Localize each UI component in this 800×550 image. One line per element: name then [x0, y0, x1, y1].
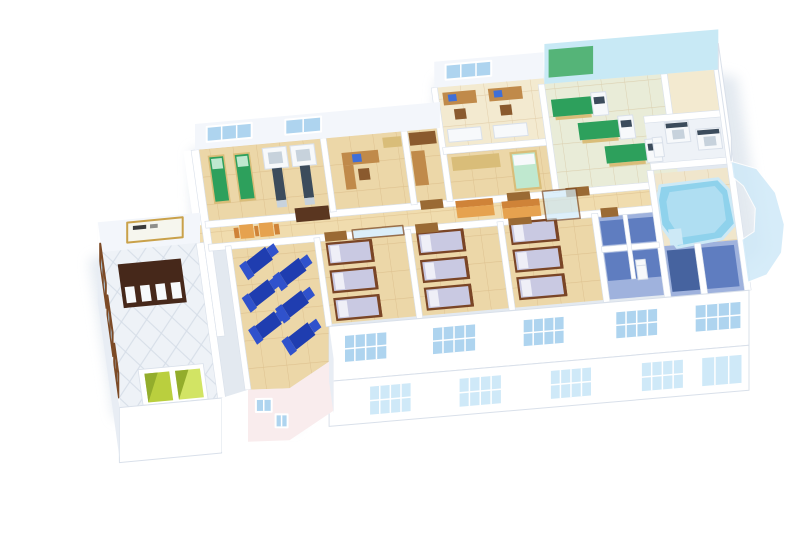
- physio-partition-screen: [549, 46, 594, 78]
- door: [600, 207, 618, 218]
- computer-monitor: [352, 154, 362, 163]
- storage-cabinet: [408, 131, 436, 146]
- physio-table: [605, 143, 648, 164]
- scanner-machine: [276, 200, 287, 208]
- computer-monitor: [448, 94, 457, 102]
- exam-bed-pillow: [513, 154, 535, 166]
- lobby-facade: [119, 398, 221, 463]
- glass-door: [542, 188, 580, 221]
- facade-window: [701, 354, 742, 387]
- facade-filler: [222, 390, 248, 452]
- white-couch: [493, 123, 528, 139]
- sterilizer-machine: [703, 136, 716, 146]
- side-table: [382, 136, 402, 148]
- window: [446, 61, 492, 80]
- floorplan-render: [0, 0, 800, 550]
- office-chair: [358, 168, 371, 180]
- door: [324, 231, 347, 242]
- waiting-table: [239, 224, 255, 239]
- toilet: [653, 143, 665, 158]
- scanner-machine: [304, 197, 315, 205]
- window: [207, 123, 252, 142]
- computer-monitor: [493, 90, 502, 98]
- physio-table: [551, 96, 594, 117]
- office-chair: [500, 104, 513, 115]
- hospital-logo: [150, 224, 158, 229]
- toilet: [636, 265, 648, 280]
- sterilizer-machine: [672, 129, 685, 139]
- scanner-machine: [296, 149, 312, 162]
- office-chair: [454, 108, 467, 119]
- scanner-machine: [268, 151, 284, 164]
- physio-table: [620, 120, 632, 128]
- shower-stall: [701, 245, 739, 289]
- white-couch: [447, 127, 482, 143]
- physio-table: [593, 96, 605, 104]
- physio-table: [578, 120, 621, 141]
- treatment-bed: [236, 156, 248, 167]
- reception-sign: [127, 217, 183, 242]
- waiting-table: [259, 222, 275, 237]
- pool-steps: [668, 228, 683, 245]
- hospital-floorplan-3d: [0, 0, 800, 550]
- treatment-bed: [211, 158, 223, 169]
